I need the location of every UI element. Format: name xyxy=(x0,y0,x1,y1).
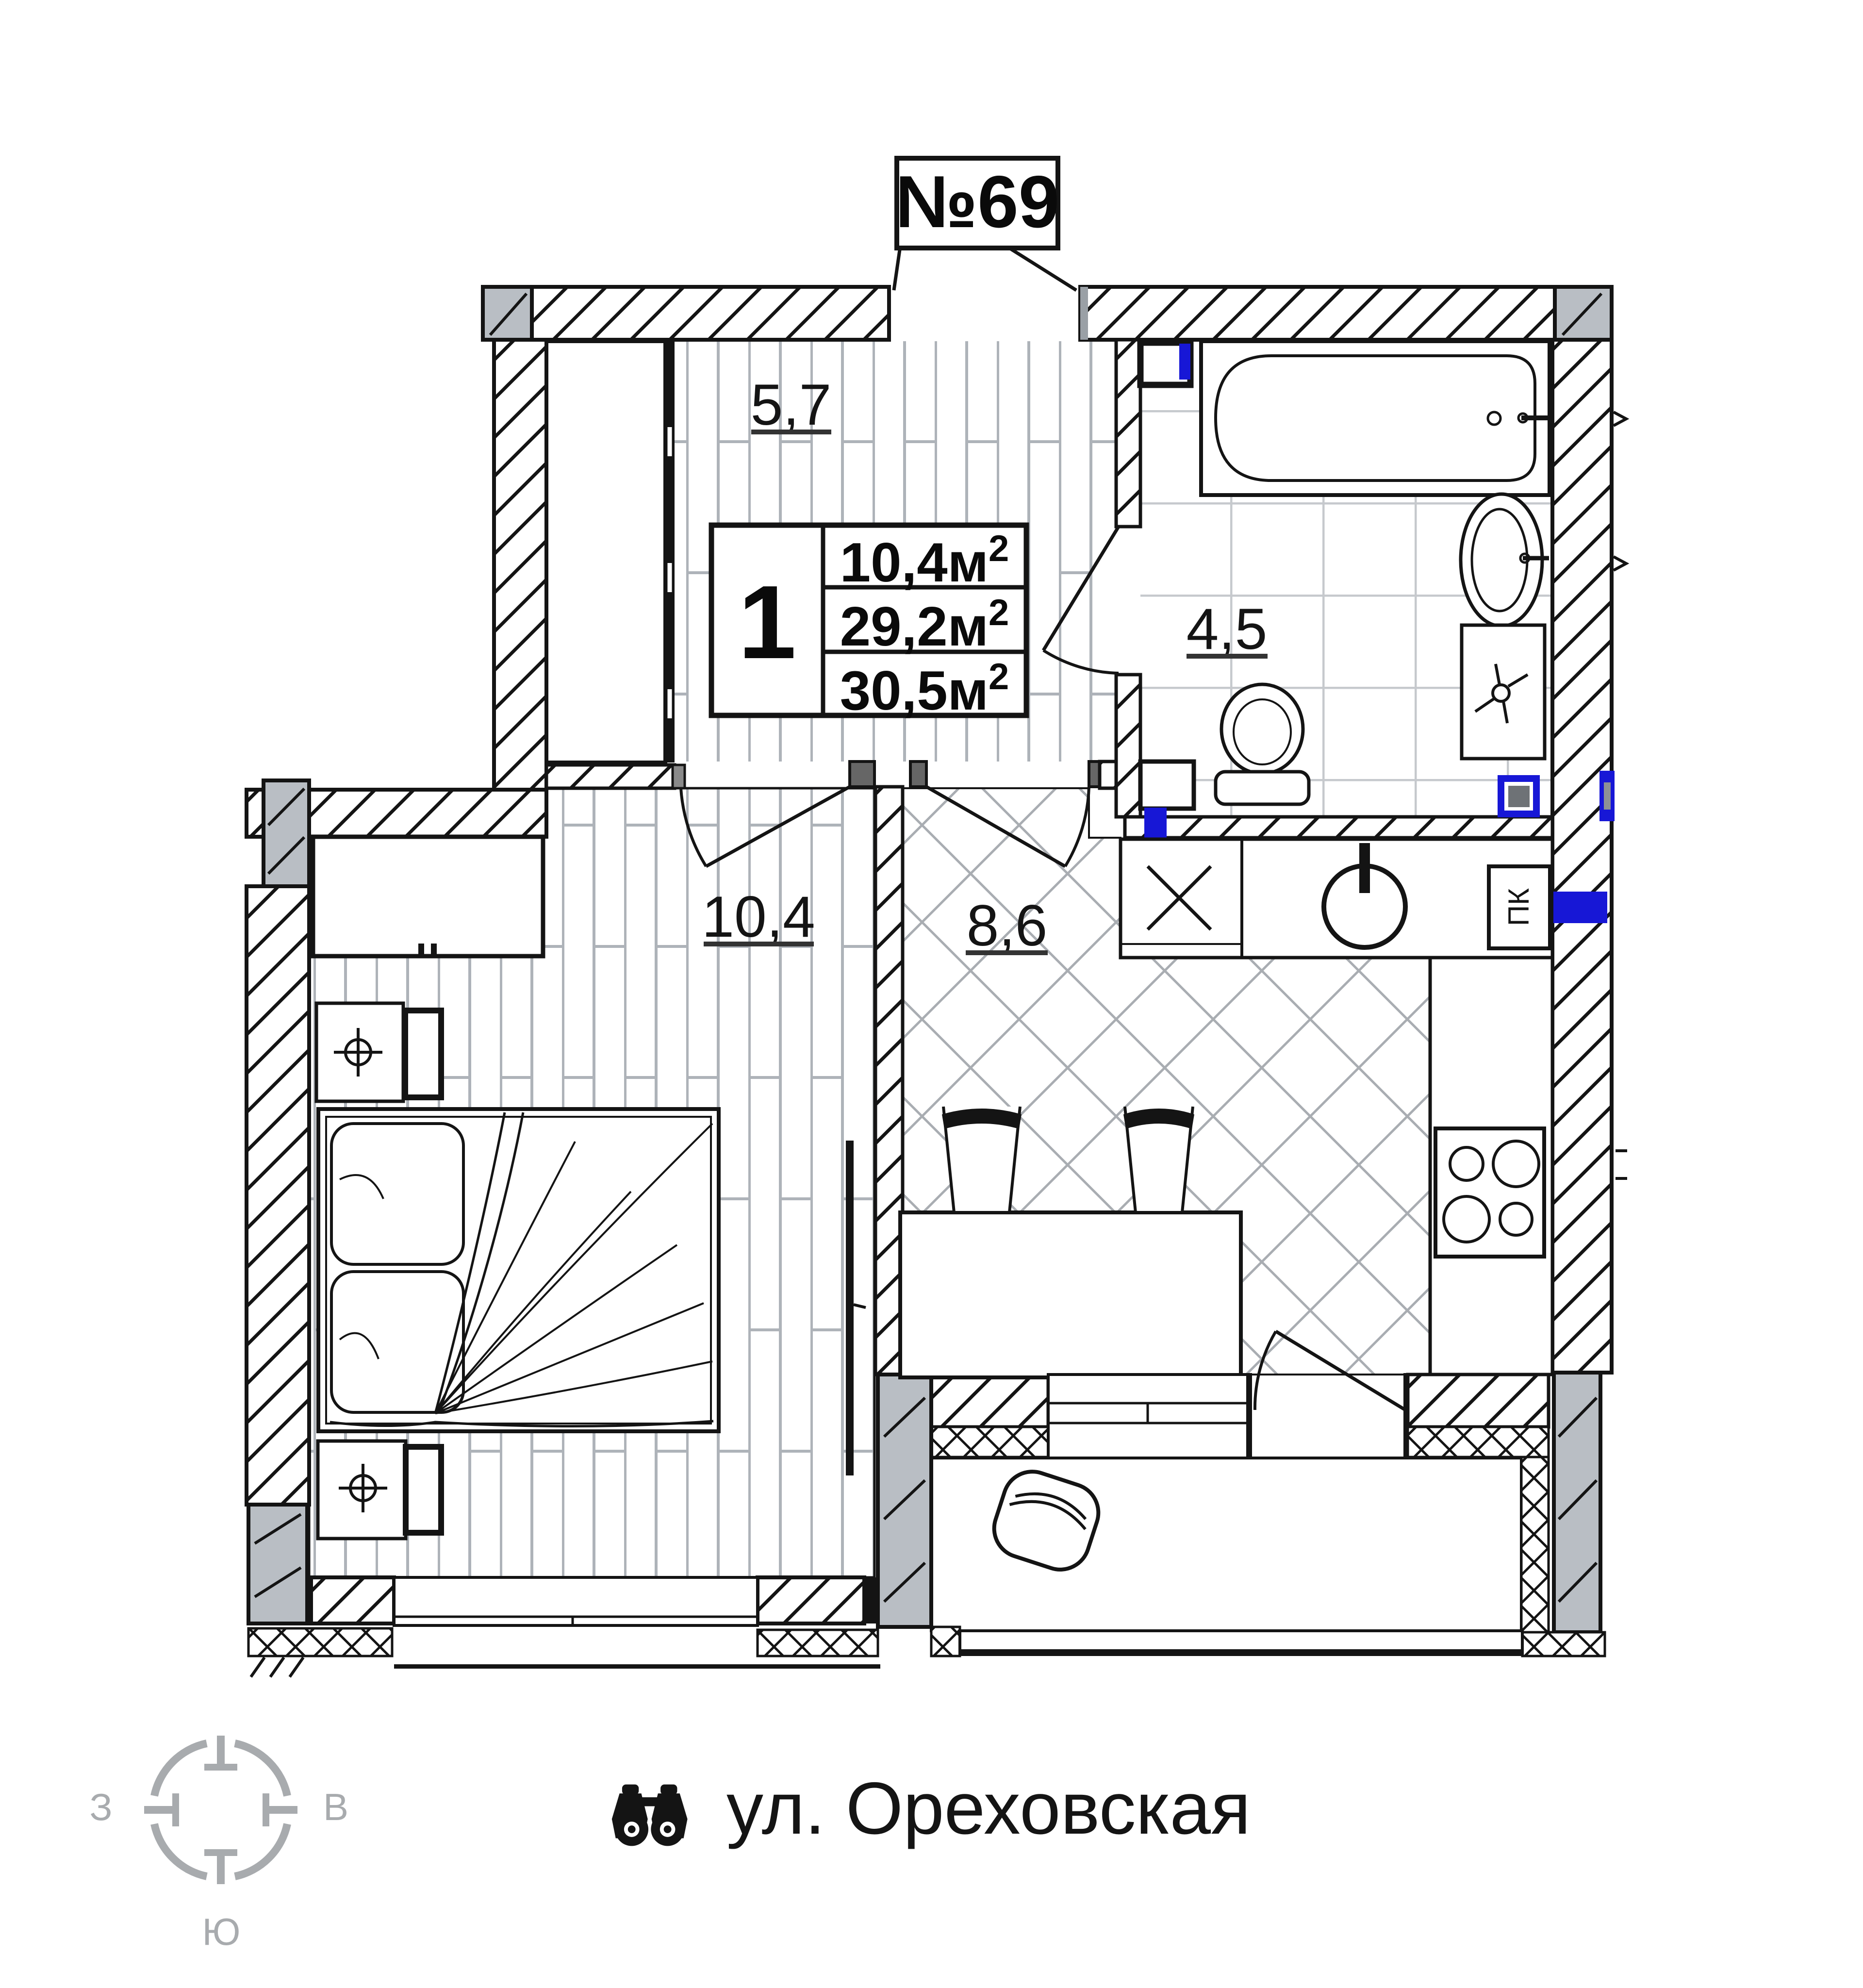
svg-text:10,4: 10,4 xyxy=(702,884,815,949)
svg-text:Ю: Ю xyxy=(202,1910,241,1953)
svg-text:5,7: 5,7 xyxy=(751,372,832,437)
svg-text:В: В xyxy=(323,1786,348,1828)
svg-text:№69: №69 xyxy=(895,161,1060,243)
svg-text:29,2м2: 29,2м2 xyxy=(840,592,1009,658)
svg-text:1: 1 xyxy=(738,563,796,680)
svg-text:4,5: 4,5 xyxy=(1187,596,1268,662)
svg-text:ул. Ореховская: ул. Ореховская xyxy=(726,1767,1251,1850)
svg-text:30,5м2: 30,5м2 xyxy=(840,656,1009,722)
svg-text:10,4м2: 10,4м2 xyxy=(840,528,1009,594)
svg-text:ПК: ПК xyxy=(1502,888,1535,926)
svg-text:З: З xyxy=(89,1786,112,1828)
svg-text:8,6: 8,6 xyxy=(967,893,1048,958)
